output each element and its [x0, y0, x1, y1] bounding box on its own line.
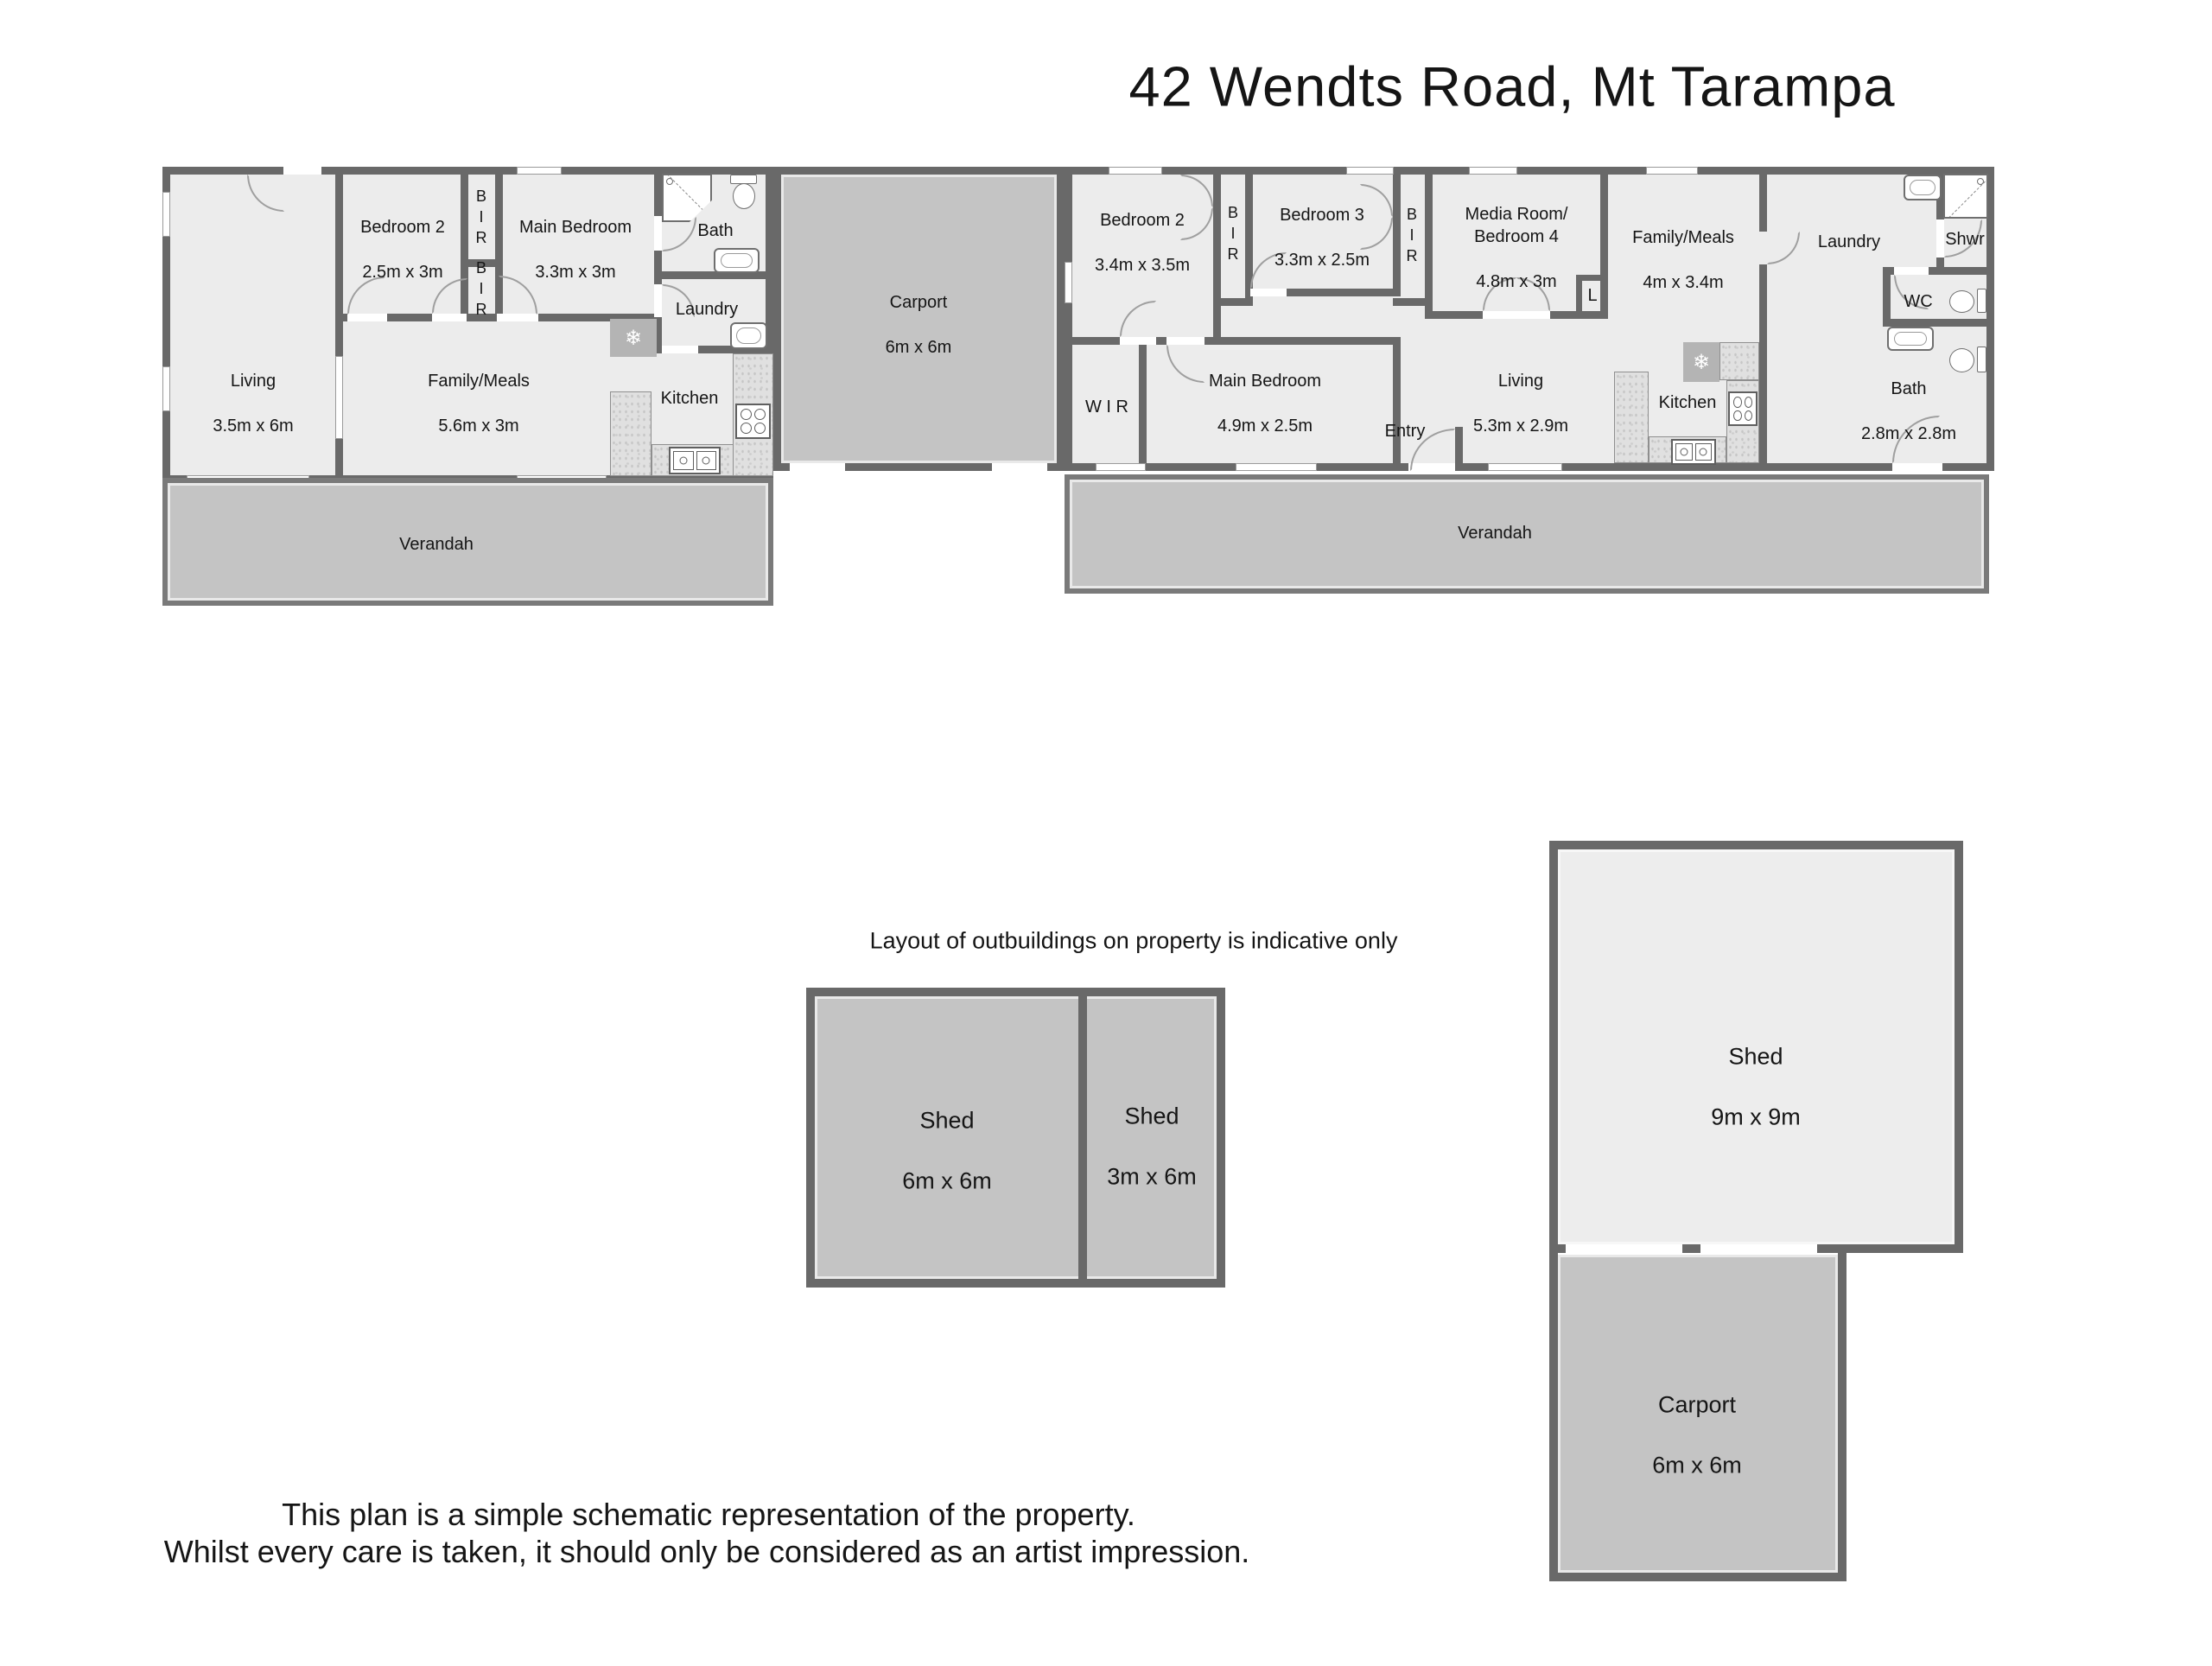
- sink-icon: [1887, 327, 1934, 351]
- opening: [1566, 1244, 1682, 1253]
- opening: [1700, 1244, 1817, 1253]
- room-name: Bath: [1861, 378, 1956, 400]
- wall: [1600, 175, 1608, 319]
- linen-label: L: [1587, 284, 1597, 307]
- sink-icon: [714, 248, 760, 273]
- room-label-bath: Bath 2.8m x 2.8m: [1861, 355, 1956, 467]
- door-opening: [497, 314, 538, 321]
- window: [335, 356, 343, 439]
- room-name: Shed: [1711, 1041, 1801, 1071]
- door-opening: [1936, 219, 1944, 258]
- room-name: Bedroom 2: [1095, 209, 1190, 232]
- disclaimer-line1: This plan is a simple schematic represen…: [282, 1497, 1135, 1533]
- carport2-wall: [1549, 1253, 1558, 1581]
- room-label-main-bedroom: Main Bedroom 4.9m x 2.5m: [1209, 347, 1321, 460]
- kitchen-counter: [1719, 342, 1759, 380]
- carport2-wall: [1838, 1253, 1847, 1581]
- toilet-icon: [1977, 347, 1986, 372]
- stove-icon: [735, 404, 771, 439]
- carport2-label: Carport 6m x 6m: [1652, 1359, 1742, 1510]
- sink-icon: [1904, 175, 1942, 200]
- room-name: Bedroom 3: [1274, 204, 1370, 226]
- door-opening: [662, 346, 698, 353]
- disclaimer-line2: Whilst every care is taken, it should on…: [164, 1534, 1250, 1570]
- window: [1346, 167, 1394, 175]
- room-label-bath: Bath: [697, 219, 733, 242]
- room-name: Living: [213, 370, 293, 392]
- floorplan-canvas: 42 Wendts Road, Mt Tarampa ❄: [0, 0, 2212, 1666]
- bir-label: B I R: [1407, 204, 1418, 266]
- room-label-laundry: Laundry: [676, 298, 738, 321]
- room-name: Shed: [902, 1105, 992, 1135]
- wall: [1455, 427, 1463, 471]
- door-opening: [283, 167, 321, 175]
- window: [1488, 463, 1562, 471]
- room-name: Shed: [1107, 1101, 1197, 1131]
- door-opening: [347, 314, 387, 321]
- room-dims: 3.3m x 3m: [519, 261, 632, 283]
- window: [1236, 463, 1317, 471]
- snowflake-icon: ❄: [1693, 350, 1710, 375]
- window: [1096, 463, 1146, 471]
- outbuildings-note: Layout of outbuildings on property is in…: [870, 928, 1398, 955]
- room-dims: 4.8m x 3m: [1465, 270, 1568, 293]
- bir-label: B I R: [1228, 202, 1239, 264]
- room-dims: 4.9m x 2.5m: [1209, 415, 1321, 437]
- sink-icon: [730, 322, 767, 349]
- shed-3x6-label: Shed 3m x 6m: [1107, 1071, 1197, 1222]
- door-opening: [1894, 267, 1929, 275]
- room-label-bedroom2: Bedroom 2 2.5m x 3m: [360, 194, 445, 306]
- room-dims: 2.8m x 2.8m: [1861, 423, 1956, 445]
- room-name: Main Bedroom: [1209, 370, 1321, 392]
- wall: [1883, 267, 1891, 327]
- room-label-wir: W I R: [1085, 396, 1128, 418]
- room-dims: 2.5m x 3m: [360, 261, 445, 283]
- room-label-living: Living 5.3m x 2.9m: [1473, 347, 1568, 460]
- room-name: Family/Meals: [428, 370, 530, 392]
- window: [1646, 167, 1698, 175]
- shower-icon: [1943, 174, 1988, 219]
- stove-icon: [1728, 391, 1758, 426]
- room-label-kitchen: Kitchen: [661, 387, 719, 410]
- room-label-family-meals: Family/Meals 5.6m x 3m: [428, 347, 530, 460]
- room-label-media-room: Media Room/ Bedroom 4 4.8m x 3m: [1465, 181, 1568, 315]
- kitchen-sink-icon: [669, 447, 721, 474]
- room-dims: 3.3m x 2.5m: [1274, 249, 1370, 271]
- room-name: Living: [1473, 370, 1568, 392]
- room-label-bedroom2: Bedroom 2 3.4m x 3.5m: [1095, 187, 1190, 299]
- wall: [1393, 298, 1433, 306]
- room-dims: 6m x 6m: [1652, 1451, 1742, 1481]
- room-name: Media Room/ Bedroom 4: [1465, 203, 1568, 248]
- room-label-kitchen: Kitchen: [1659, 391, 1717, 414]
- wall: [1213, 298, 1253, 306]
- room-label-laundry: Laundry: [1818, 231, 1880, 253]
- page-title: 42 Wendts Road, Mt Tarampa: [1128, 54, 1895, 119]
- wall: [1393, 345, 1401, 463]
- door-opening: [654, 216, 662, 251]
- shed-6x6-label: Shed 6m x 6m: [902, 1075, 992, 1226]
- wall: [1425, 175, 1433, 319]
- opening: [790, 463, 845, 471]
- room-label-living: Living 3.5m x 6m: [213, 347, 293, 460]
- verandah-label: Verandah: [1458, 522, 1532, 544]
- entry-label: Entry: [1385, 420, 1426, 442]
- toilet-icon: [1949, 290, 1974, 313]
- verandah-label: Verandah: [399, 533, 474, 556]
- wall: [1576, 275, 1605, 281]
- wall: [1576, 275, 1582, 319]
- window: [162, 366, 170, 411]
- room-dims: 9m x 9m: [1711, 1103, 1801, 1133]
- kitchen-sink-icon: [1671, 439, 1716, 465]
- room-label-family-meals: Family/Meals 4m x 3.4m: [1632, 204, 1734, 316]
- wall: [1213, 175, 1221, 345]
- window: [1109, 167, 1162, 175]
- window: [1469, 167, 1517, 175]
- window: [1065, 262, 1072, 303]
- room-label-bedroom3: Bedroom 3 3.3m x 2.5m: [1274, 181, 1370, 294]
- room-name: Carport: [886, 291, 952, 314]
- wall: [1759, 264, 1767, 471]
- room-name: Carport: [1652, 1389, 1742, 1420]
- wall: [1139, 345, 1147, 463]
- shed-9x9-label: Shed 9m x 9m: [1711, 1011, 1801, 1162]
- wall: [1393, 175, 1401, 296]
- bir-label: B I R: [476, 258, 487, 320]
- toilet-icon: [733, 183, 755, 209]
- toilet-icon: [1977, 289, 1986, 313]
- room-name: Bedroom 2: [360, 216, 445, 238]
- room-name: Main Bedroom: [519, 216, 632, 238]
- door-opening: [1120, 337, 1156, 345]
- room-name: Family/Meals: [1632, 226, 1734, 249]
- carport2-wall: [1549, 1573, 1847, 1581]
- window: [517, 167, 562, 175]
- room-label-shower: Shwr: [1945, 228, 1985, 251]
- fridge: ❄: [610, 319, 657, 357]
- bir-label: B I R: [476, 186, 487, 248]
- room-label-carport: Carport 6m x 6m: [886, 269, 952, 381]
- room-label-main-bedroom: Main Bedroom 3.3m x 3m: [519, 194, 632, 306]
- door-opening: [1166, 337, 1205, 345]
- room-dims: 3m x 6m: [1107, 1162, 1197, 1192]
- fridge: ❄: [1683, 342, 1719, 382]
- room-dims: 3.4m x 3.5m: [1095, 254, 1190, 277]
- room-dims: 3.5m x 6m: [213, 415, 293, 437]
- room-dims: 5.6m x 3m: [428, 415, 530, 437]
- kitchen-counter: [1614, 372, 1649, 463]
- snowflake-icon: ❄: [625, 326, 642, 351]
- opening: [992, 463, 1047, 471]
- room-dims: 4m x 3.4m: [1632, 271, 1734, 294]
- door-opening: [432, 314, 467, 321]
- wall: [1883, 319, 1994, 327]
- room-label-wc: WC: [1904, 290, 1932, 313]
- room-dims: 6m x 6m: [902, 1167, 992, 1197]
- wall: [1078, 996, 1087, 1279]
- room-dims: 5.3m x 2.9m: [1473, 415, 1568, 437]
- kitchen-counter: [610, 391, 652, 476]
- door-opening: [654, 284, 662, 317]
- window: [162, 192, 170, 237]
- wall: [1759, 175, 1767, 232]
- room-dims: 6m x 6m: [886, 336, 952, 359]
